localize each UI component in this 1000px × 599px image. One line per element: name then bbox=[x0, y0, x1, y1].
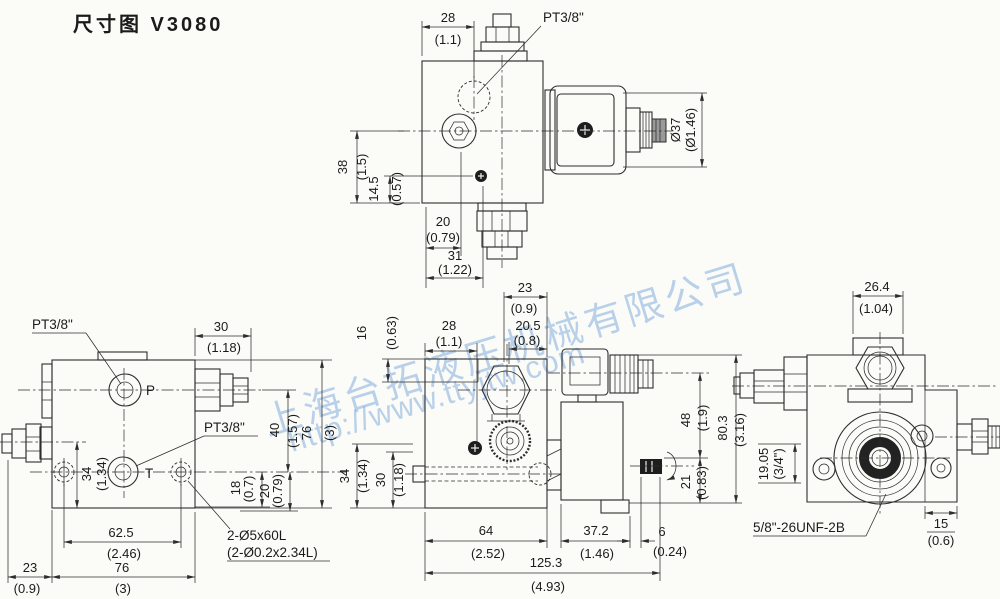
left-dim-20-in: (0.79) bbox=[270, 474, 285, 508]
right-view-dimensions: 26.4 (1.04) 19.05 (3/4") 15 (0.6) 5/8"-2… bbox=[753, 279, 957, 548]
top-dim-31-in: (1.22) bbox=[438, 262, 472, 277]
mid-dim-1253-in: (4.93) bbox=[531, 579, 565, 594]
right-dim-1905-in: (3/4") bbox=[771, 448, 786, 479]
left-label-holes-mm: 2-Ø5x60L bbox=[227, 528, 287, 543]
top-dim-28-mm: 28 bbox=[441, 10, 455, 25]
top-dim-20-in: (0.79) bbox=[426, 230, 460, 245]
left-dim-76-in: (3) bbox=[322, 425, 337, 441]
middle-view-dimensions: 23 (0.9) 20.5 (0.8) 28 (1.1) 16 (0.63) 3… bbox=[337, 280, 747, 594]
right-dim-264-in: (1.04) bbox=[859, 301, 893, 316]
thread-label: 5/8"-26UNF-2B bbox=[753, 520, 845, 535]
top-view-solenoid bbox=[545, 86, 666, 174]
drawing-page: 尺寸图 V3080 上海台拓液压机械有限公司 http://www.ttyjtw… bbox=[0, 0, 1000, 599]
left-dim-18-in: (0.7) bbox=[241, 476, 256, 503]
top-dim-28-in: (1.1) bbox=[435, 32, 462, 47]
right-dim-1905-mm: 19.05 bbox=[756, 448, 771, 481]
top-dim-145-mm: 14.5 bbox=[366, 176, 381, 201]
top-view: 28 (1.1) PT3/8" Ø37 (Ø1.46) 38 (1.5) 14.… bbox=[335, 10, 707, 288]
solenoid-coil bbox=[561, 402, 623, 500]
middle-view: 23 (0.9) 20.5 (0.8) 28 (1.1) 16 (0.63) 3… bbox=[337, 280, 747, 594]
left-label-pt38-t: PT3/8" bbox=[204, 420, 245, 435]
mid-dim-803-in: (3.16) bbox=[732, 413, 747, 447]
port-t-label: T bbox=[145, 466, 153, 481]
mid-dim-1253-mm: 125.3 bbox=[530, 555, 563, 570]
mid-dim-23-in: (0.9) bbox=[511, 301, 538, 316]
mid-dim-205-in: (0.8) bbox=[514, 333, 541, 348]
left-dim-23-in: (0.9) bbox=[14, 581, 41, 596]
mid-dim-6-mm: 6 bbox=[658, 524, 665, 539]
left-dim-625-in: (2.46) bbox=[107, 546, 141, 561]
right-dim-15-in: (0.6) bbox=[928, 533, 955, 548]
middle-view-centerlines bbox=[405, 344, 712, 474]
mid-dim-64-mm: 64 bbox=[479, 523, 493, 538]
left-fitting bbox=[734, 357, 807, 410]
middle-view-body bbox=[413, 349, 676, 513]
locknut bbox=[547, 440, 561, 490]
left-dim-40-mm: 40 bbox=[267, 423, 282, 437]
mid-dim-21-mm: 21 bbox=[678, 475, 693, 489]
top-dim-dia37-in: (Ø1.46) bbox=[683, 108, 698, 152]
left-dim-30-in: (1.18) bbox=[207, 340, 241, 355]
screw-bottom-left bbox=[813, 458, 835, 480]
mid-dim-34-in: (1.34) bbox=[355, 459, 370, 493]
mid-dim-372-in: (1.46) bbox=[580, 546, 614, 561]
leader-port-p bbox=[86, 333, 121, 384]
left-view: 30 (1.18) 34 (1.34) 18 (0.7) 20 (0.79) 4… bbox=[0, 317, 347, 596]
mid-dim-28-mm: 28 bbox=[442, 318, 456, 333]
top-dim-dia37-mm: Ø37 bbox=[668, 118, 683, 143]
mid-dim-16-mm: 16 bbox=[354, 326, 369, 340]
mid-dim-48-mm: 48 bbox=[678, 413, 693, 427]
left-dim-76-mm: 76 bbox=[299, 426, 314, 440]
dimension-drawing: 尺寸图 V3080 上海台拓液压机械有限公司 http://www.ttyjtw… bbox=[0, 0, 1000, 599]
left-dim-40-in: (1.57) bbox=[285, 414, 300, 448]
top-view-dimensions: 28 (1.1) PT3/8" Ø37 (Ø1.46) 38 (1.5) 14.… bbox=[335, 10, 707, 288]
mid-dim-34-mm: 34 bbox=[337, 469, 352, 483]
left-dim-30-mm: 30 bbox=[214, 319, 228, 334]
mid-dim-372-mm: 37.2 bbox=[583, 523, 608, 538]
mid-dim-48-in: (1.9) bbox=[695, 405, 710, 432]
left-dim-76b-in: (3) bbox=[115, 581, 131, 596]
leader-port-t bbox=[136, 436, 204, 466]
screw-top-right bbox=[911, 425, 933, 447]
leader-mounting-hole bbox=[188, 481, 230, 529]
manual-override-pin bbox=[640, 459, 662, 474]
mid-dim-21-in: (0.83) bbox=[694, 466, 709, 500]
mid-dim-23-mm: 23 bbox=[518, 280, 532, 295]
port-p-label: P bbox=[146, 383, 155, 398]
right-view: 26.4 (1.04) 19.05 (3/4") 15 (0.6) 5/8"-2… bbox=[732, 279, 1000, 548]
top-label-pt38: PT3/8" bbox=[543, 10, 584, 25]
mid-dim-30-mm: 30 bbox=[373, 473, 388, 487]
din-connector bbox=[562, 349, 608, 395]
right-dim-264-mm: 26.4 bbox=[864, 279, 889, 294]
top-dim-31-mm: 31 bbox=[448, 248, 462, 263]
mid-dim-205-mm: 20.5 bbox=[515, 318, 540, 333]
mid-dim-803-mm: 80.3 bbox=[715, 415, 730, 440]
left-dim-625-mm: 62.5 bbox=[108, 525, 133, 540]
left-dim-23-mm: 23 bbox=[23, 560, 37, 575]
top-dim-20-mm: 20 bbox=[436, 214, 450, 229]
mid-dim-64-in: (2.52) bbox=[471, 546, 505, 561]
right-dim-15-mm: 15 bbox=[934, 516, 948, 531]
right-fitting bbox=[957, 419, 1000, 454]
mid-dim-16-in: (0.63) bbox=[384, 316, 399, 350]
top-dim-38-mm: 38 bbox=[335, 160, 350, 174]
screw-bottom-right bbox=[931, 458, 951, 478]
left-label-pt38-p: PT3/8" bbox=[32, 317, 73, 332]
left-dim-34-mm: 34 bbox=[79, 467, 94, 481]
left-dim-34-in: (1.34) bbox=[94, 457, 109, 491]
top-dim-145-in: (0.57) bbox=[389, 172, 404, 206]
left-label-holes-in: (2-Ø0.2x2.34L) bbox=[227, 545, 318, 560]
page-title: 尺寸图 V3080 bbox=[73, 13, 223, 36]
mid-dim-6-in: (0.24) bbox=[653, 544, 687, 559]
left-dim-76b-mm: 76 bbox=[115, 560, 129, 575]
mid-dim-30-in: (1.18) bbox=[391, 463, 406, 497]
mid-dim-28-in: (1.1) bbox=[436, 334, 463, 349]
leader-thread bbox=[866, 494, 886, 536]
